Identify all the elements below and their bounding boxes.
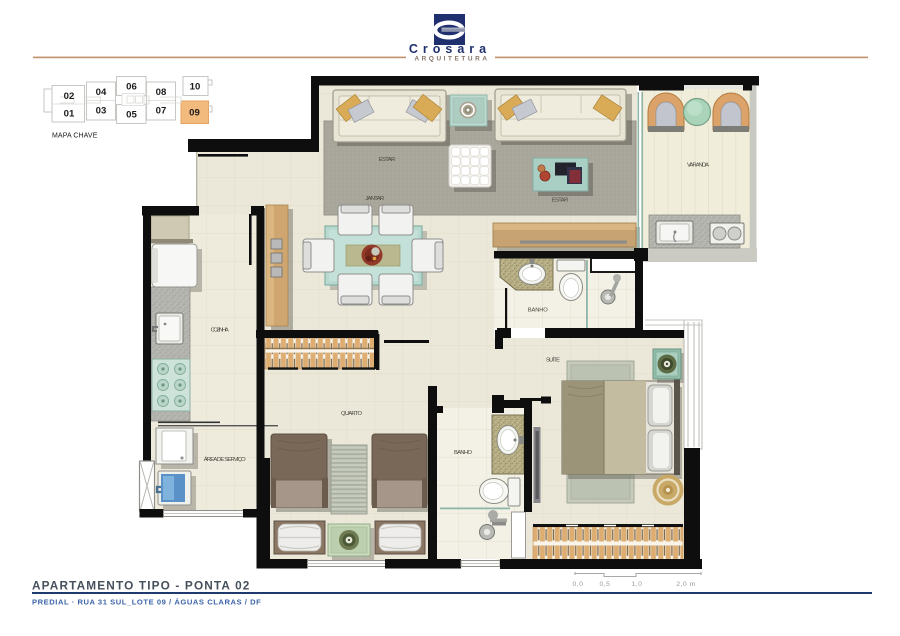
svg-text:06: 06: [126, 82, 137, 93]
svg-text:ARQUITETURA: ARQUITETURA: [414, 56, 489, 63]
svg-text:0,0: 0,0: [573, 581, 584, 588]
svg-text:PREDIAL · RUA 31 SUL_LOTE 09 /: PREDIAL · RUA 31 SUL_LOTE 09 / ÁGUAS CLA…: [32, 598, 261, 607]
svg-text:COZINHA: COZINHA: [211, 328, 229, 334]
svg-text:ÁREA DE SERVIÇO: ÁREA DE SERVIÇO: [204, 456, 246, 463]
svg-text:02: 02: [64, 91, 75, 102]
svg-text:JANTAR: JANTAR: [365, 196, 384, 202]
svg-text:09: 09: [189, 108, 200, 119]
svg-text:2,0 m: 2,0 m: [676, 581, 696, 588]
svg-text:QUARTO: QUARTO: [341, 411, 362, 417]
svg-text:BANHO: BANHO: [528, 308, 548, 314]
svg-text:03: 03: [96, 106, 107, 117]
svg-text:1,0: 1,0: [632, 581, 643, 588]
svg-text:APARTAMENTO TIPO - PONTA 02: APARTAMENTO TIPO - PONTA 02: [32, 579, 251, 593]
svg-text:ESTAR: ESTAR: [379, 157, 396, 163]
svg-text:07: 07: [156, 106, 167, 117]
svg-text:01: 01: [64, 109, 75, 120]
svg-text:MAPA CHAVE: MAPA CHAVE: [52, 133, 98, 140]
svg-text:05: 05: [126, 110, 137, 121]
svg-text:04: 04: [96, 87, 107, 98]
svg-text:Crosara: Crosara: [409, 42, 491, 56]
svg-text:ESTAR: ESTAR: [552, 198, 569, 204]
svg-text:0,5: 0,5: [600, 581, 611, 588]
svg-text:VARANDA: VARANDA: [687, 163, 709, 169]
svg-text:10: 10: [190, 82, 201, 93]
svg-text:08: 08: [156, 87, 167, 98]
svg-text:SUÍTE: SUÍTE: [546, 357, 560, 364]
svg-text:BANHO: BANHO: [454, 450, 472, 456]
